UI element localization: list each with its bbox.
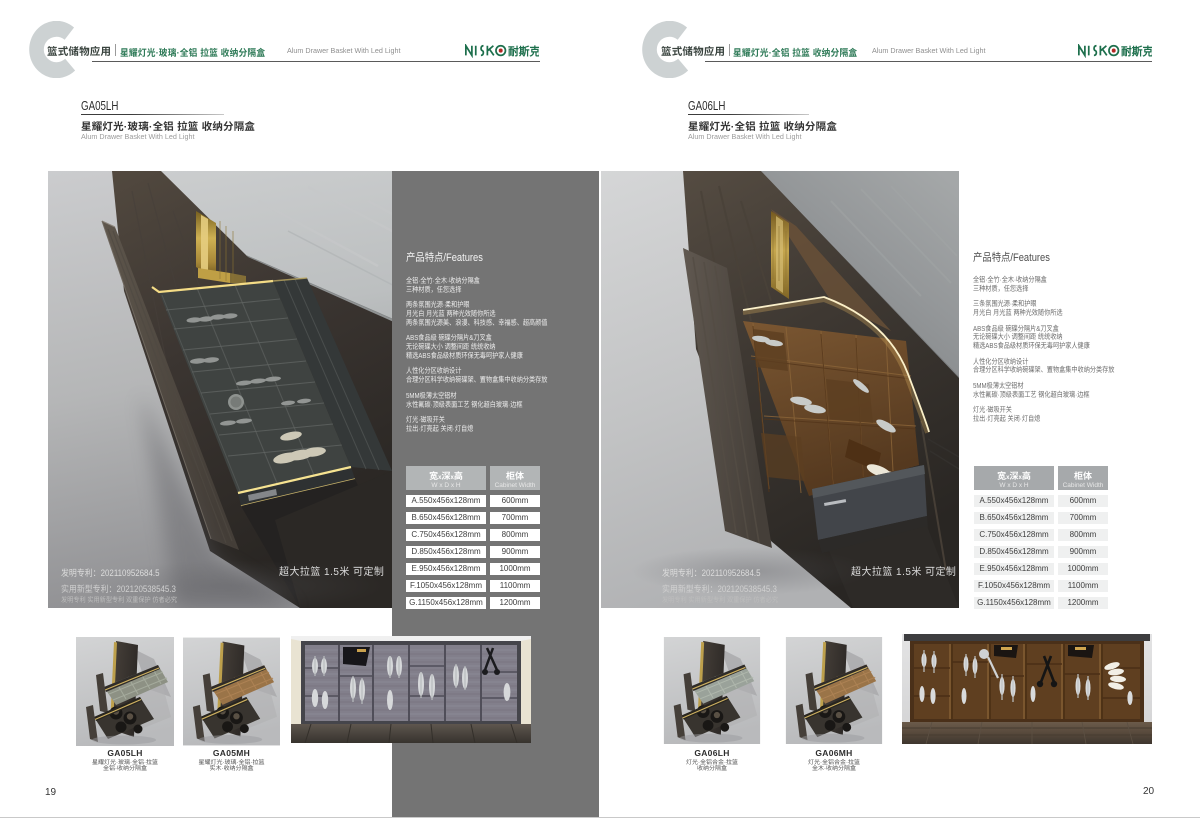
svg-text:耐斯克: 耐斯克 bbox=[1121, 44, 1152, 58]
svg-text:耐斯克: 耐斯克 bbox=[508, 44, 539, 58]
